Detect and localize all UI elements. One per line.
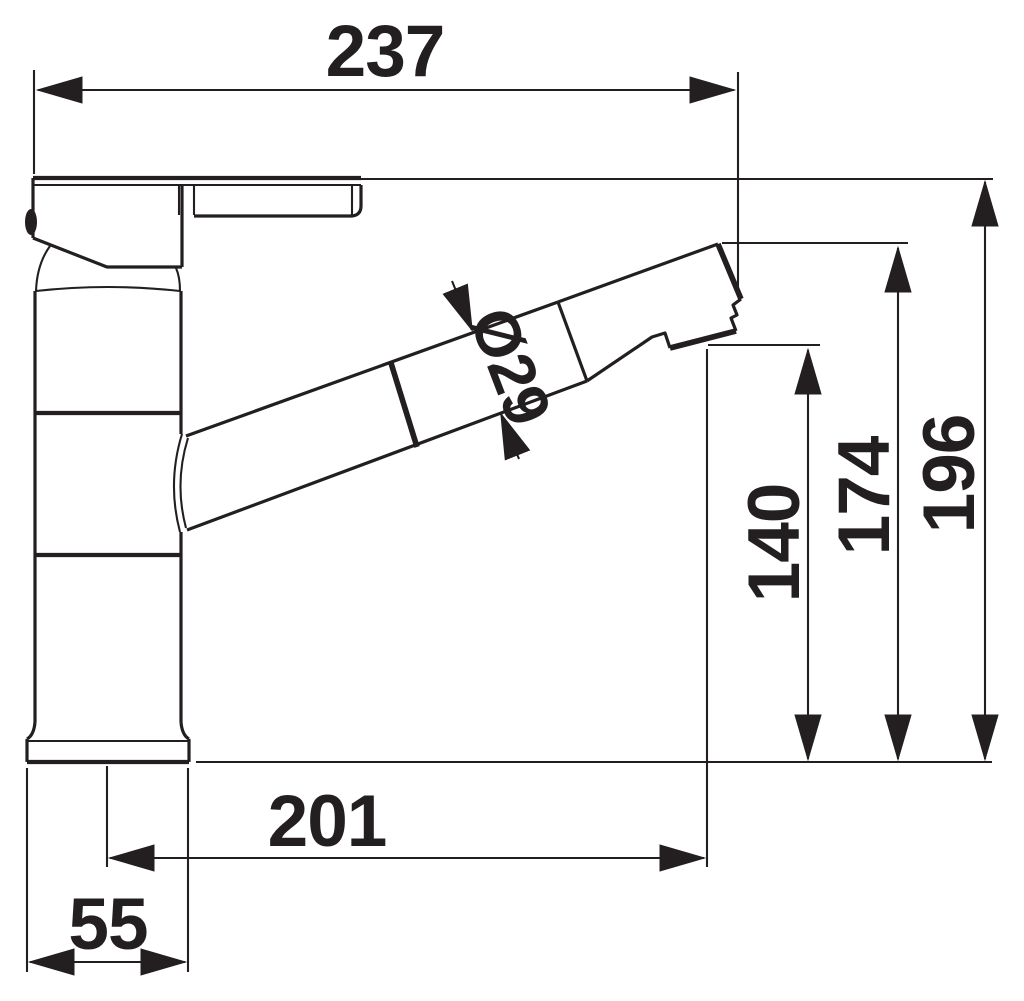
faucet-technical-drawing: 237 201 55 196 174 140 Ø29 [0,0,1024,1001]
nozzle-front-notches [731,299,741,331]
handle-bottom-edge [194,185,361,216]
dimension-labels: 237 201 55 196 174 140 Ø29 [68,11,990,965]
dim-spout-tip-height-label: 174 [824,435,905,555]
head-bottom-edge [33,238,182,267]
dim-overall-height-label: 196 [909,415,990,534]
drawing-canvas: 237 201 55 196 174 140 Ø29 [0,0,1024,1001]
neck-left-curve [36,246,50,291]
spray-head-underside [587,333,670,381]
column-top-edge [36,287,180,291]
dim-outlet-height-label: 140 [734,484,815,603]
dim-outlet-reach-label: 201 [268,781,387,862]
spray-head-joint-line [558,302,587,381]
base-left-shoulder [27,722,35,739]
dim-base-width-label: 55 [68,884,147,965]
neck-right-curve [176,268,180,291]
spout-junction-curve-inner [180,438,188,528]
dim-overall-width-label: 237 [326,11,445,92]
dim-spout-diameter-label: Ø29 [456,298,565,434]
base-right-shoulder [181,722,189,739]
mixer-cap-detail [25,209,37,235]
spray-head-top-edge [558,244,718,302]
faucet-outline [25,178,741,762]
spout-hose-joint-line [391,363,417,447]
